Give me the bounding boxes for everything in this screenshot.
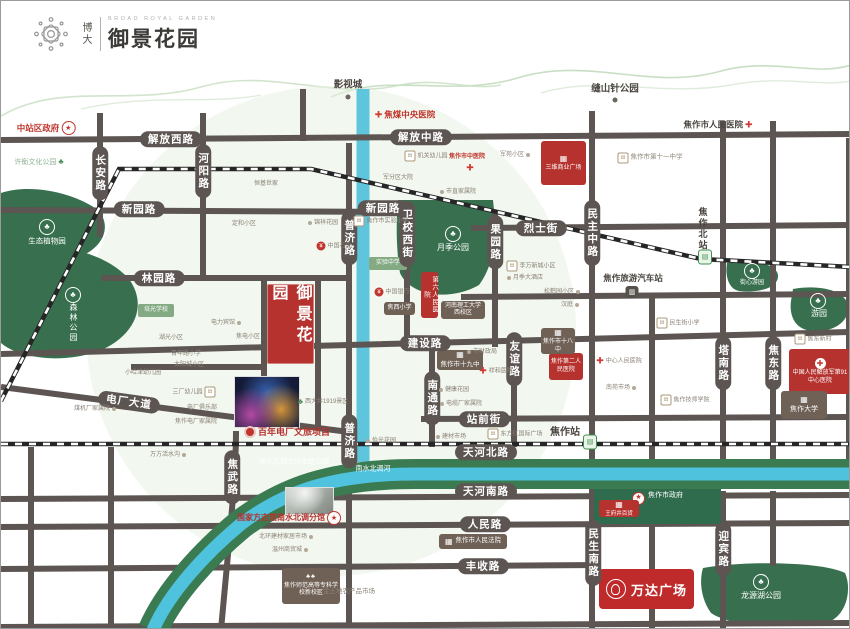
road-label-民主中路: 民主中路 (584, 200, 600, 266)
poi-太阳城小区: 太阳城小区 (174, 362, 204, 368)
poi-焦电小区: 焦电小区 (236, 334, 260, 340)
poi-label-text: 怡光花园 (372, 438, 396, 444)
poi-锦祥花园: 锦祥花园 (308, 220, 338, 226)
poi-label-text: 煤机厂家属院 (74, 406, 110, 412)
poi-marker: ♣ (445, 226, 461, 242)
poi-南水北调河: 南水北调河 (356, 466, 391, 473)
poi-label-text: 汉庭 (561, 302, 573, 308)
road-label-解放中路: 解放中路 (390, 129, 452, 145)
district-box-焦作第二人民医院: 焦作第二人民医院 (549, 353, 583, 380)
project-marker-yujing-garden: 御景花园 (267, 284, 314, 364)
road-label-丰收路: 丰收路 (458, 558, 509, 574)
district-box-label: 河南理工大学西校区 (443, 303, 483, 318)
poi-月季公园: 月季公园 (437, 244, 469, 252)
district-box-label: 培光学校 (144, 307, 168, 315)
poi-南苑市场: 南苑市场 (606, 385, 636, 391)
poi-marker: ▤ (698, 250, 712, 265)
school-icon: ▤ (660, 395, 671, 406)
train-icon: ▤ (583, 435, 597, 450)
poi-label-text: 月季公园 (437, 244, 469, 252)
poi-森林公园: 森林公园 (69, 303, 77, 343)
district-box-焦西小学: 焦西小学 (384, 302, 415, 315)
cross-icon: ✚ (745, 121, 753, 130)
dotd-icon (346, 95, 351, 100)
poi-焦作技师学院: ▤焦作技师学院 (660, 395, 709, 406)
poi-label-text: 松鹤园小区 (544, 289, 574, 295)
treesg-icon: ♣ (58, 158, 63, 166)
treesc-icon: ♣ (39, 219, 55, 235)
brand-name-en: BROAD ROYAL GARDEN (108, 16, 217, 22)
poi-label-text: 市直家属院 (446, 189, 476, 195)
poi-label-text: 焦东新村 (807, 336, 831, 342)
poi-label-text: 北环建材家居市场 (259, 534, 307, 540)
road-label-南通路: 南通路 (424, 371, 440, 425)
poi-marker (613, 98, 618, 103)
district-box-焦作市十八中: ▦焦作市十八中 (541, 328, 575, 354)
district-box-label: 三维商业广场 (545, 165, 581, 173)
power-plant-night-photo (234, 376, 300, 428)
poi-label-text: 中站区政府 (17, 124, 60, 133)
poi-民生街小学: ▤民生街小学 (656, 318, 699, 329)
poi-湖光小区: 湖光小区 (159, 335, 183, 341)
poi-label-text: 民生街小学 (669, 320, 699, 326)
poi-焦东新村: ▤焦东新村 (794, 334, 831, 345)
poi-label-text: 龙源湖公园 (741, 592, 781, 600)
building-icon: ▦ (554, 328, 562, 338)
poi-label-text: 锦祥花园 (314, 220, 338, 226)
district-box-焦作市人民法院: ▦焦作市人民法院 (439, 534, 507, 549)
poi-健康花园: 健康花园 (439, 387, 469, 393)
dots-icon (304, 548, 308, 552)
poi-label-text: 许衡文化公园 (14, 159, 56, 166)
poi-月季大酒店: 月季大酒店 (507, 275, 543, 281)
poi-label-text: 影视城 (334, 80, 363, 90)
road-label-人民路: 人民路 (460, 516, 511, 532)
poi-label-text: 军分区大院 (383, 175, 413, 181)
brand-project-name: 御景花园 (108, 23, 217, 53)
road-label-焦东路: 焦东路 (765, 336, 781, 390)
poi-marker: ▤ (583, 435, 597, 450)
poi-label-text: 焦作旅游汽车站 (603, 274, 663, 283)
bus-icon: ▥ (626, 286, 639, 298)
treesc-icon: ♣ (810, 293, 826, 309)
district-box-中国人民解放军第91中心医院: ✚中国人民解放军第91中心医院 (789, 349, 850, 394)
brand-divider (100, 17, 101, 51)
cross-icon: ✚ (375, 111, 383, 120)
poi-煤机厂家属院: 煤机厂家属院 (74, 406, 116, 412)
poi-marker: ♣ (744, 263, 760, 279)
wanda-logo-icon (606, 579, 626, 599)
poi-汉庭: 汉庭 (561, 302, 579, 308)
poi-marker: ✚ (466, 164, 474, 173)
dots-icon (436, 435, 440, 439)
trees-icon: ♣♣ (306, 574, 316, 582)
road-label-站前街: 站前街 (459, 411, 510, 427)
poi-label-text: 健康花园 (445, 387, 469, 393)
poi-中站区政府: 中站区政府★ (17, 121, 76, 135)
poi-恒基世家: 恒基世家 (254, 181, 278, 187)
reddot-icon (244, 426, 256, 438)
district-box-label: 王府井百货 (605, 511, 633, 518)
poi-label-text: 太阳城小区 (174, 362, 204, 368)
road-label-烈士街: 烈士街 (516, 220, 567, 236)
poi-marker: ♣ (753, 574, 769, 590)
road-label-焦武路: 焦武路 (224, 450, 240, 504)
building-icon: ▦ (456, 350, 464, 360)
poi-焦作旅游汽车站: 焦作旅游汽车站 (603, 274, 663, 283)
poi-三厂幼儿园: 三厂幼儿园▤ (172, 387, 215, 398)
treesc-icon: ♣ (744, 263, 760, 279)
poi-北环建材家居市场: 北环建材家居市场 (259, 534, 313, 540)
poi-label-text: 祥和医院 (489, 368, 513, 374)
poi-建材市场: 建材市场 (436, 434, 466, 440)
cross-icon: ✚ (466, 164, 474, 173)
poi-label-text: 南水北调文化主题公园 (259, 459, 329, 466)
poi-中国银行: ¥中国银行 (374, 288, 409, 297)
poi-marker (346, 95, 351, 100)
poi-marker: ♣ (810, 293, 826, 309)
poi-label-text: 电厂俱乐部 (187, 405, 217, 411)
district-box-label: 焦作第二人民医院 (551, 359, 581, 374)
dots-icon (440, 402, 444, 406)
poi-国家方志馆南水北调分馆: 国家方志馆南水北调分馆★ (237, 511, 341, 525)
poi-定和小区: 定和小区 (232, 221, 256, 227)
school-icon: ▤ (656, 318, 667, 329)
poi-焦作市人民医院: 焦作市人民医院✚ (683, 121, 752, 130)
poi-label-text: 青年路小学 (171, 351, 201, 357)
poi-南水北调文化主题公园: 南水北调文化主题公园 (259, 459, 329, 466)
poi-label-text: 国家方志馆南水北调分馆 (237, 514, 325, 522)
poi-label-text: 三厂幼儿园 (172, 389, 202, 395)
poi-松鹤园小区: 松鹤园小区 (544, 289, 580, 295)
road-label-新园路: 新园路 (114, 201, 165, 217)
district-box-label: 焦作市政府 (648, 492, 683, 501)
school-icon: ▤ (353, 216, 364, 227)
poi-label-text: 街心游园 (740, 280, 764, 286)
poi-电缆厂家属院: 电缆厂家属院 (440, 401, 482, 407)
district-box-第六人民医院: 第六人民医院 (421, 272, 438, 318)
poi-市财政局: 市财政局 (467, 349, 497, 355)
brand-medallion-icon (31, 14, 71, 54)
poi-label-text: 东方红国际广场 (500, 431, 542, 437)
poi-焦作市实验小学: ▤焦作市实验小学 (353, 216, 408, 227)
poi-温州商贸城: 温州商贸城 (272, 547, 308, 553)
poi-label-text: 游园 (811, 310, 827, 318)
dots-icon (507, 276, 511, 280)
poi-焦煤中央医院: ✚焦煤中央医院 (375, 111, 436, 120)
road-label-林园路: 林园路 (134, 270, 185, 286)
district-box-label: 焦西小学 (387, 305, 411, 313)
brand-name-cn: 博大 (78, 22, 93, 46)
building-icon: ▦ (800, 395, 808, 405)
poi-市直家属院: 市直家属院 (440, 189, 476, 195)
poi-焦作电厂家属院: 焦作电厂家属院 (175, 419, 217, 425)
poi-龙源湖公园: 龙源湖公园 (741, 592, 781, 600)
dots-icon (632, 386, 636, 390)
dots-icon (309, 535, 313, 539)
poi-游园: 游园 (811, 310, 827, 318)
poi-东方红国际广场: ▤东方红国际广场 (487, 429, 542, 440)
star-icon: ★ (327, 511, 341, 525)
school-icon: ▤ (404, 151, 415, 162)
poi-label-text: 焦电小区 (236, 334, 260, 340)
treesc-icon: ♣ (65, 287, 81, 303)
district-box-三维商业广场: ▦三维商业广场 (541, 141, 586, 185)
cross-icon: ✚ (596, 357, 604, 366)
road-label-天河南路: 天河南路 (455, 483, 517, 499)
poi-机关幼儿园: ▤机关幼儿园 (404, 151, 447, 162)
poi-label-text: 建材市场 (442, 434, 466, 440)
wanda-label: 万达广场 (631, 580, 687, 599)
poi-label-text: 焦作市实验小学 (366, 218, 408, 224)
poi-百年电厂文旅项目: 百年电厂文旅项目 (244, 426, 330, 438)
poi-label-text: 湖光小区 (159, 335, 183, 341)
road-label-果园路: 果园路 (487, 215, 503, 269)
project-name: 御景花园 (267, 284, 315, 364)
poi-label-text: 金土地农产品市场 (323, 589, 375, 596)
poi-万方活水沟: 万方活水沟 (150, 452, 186, 458)
poi-marker: ♣ (39, 219, 55, 235)
poi-李万新城小区: ▤李万新城小区 (506, 261, 555, 272)
road-label-长安路: 长安路 (92, 146, 108, 200)
poi-label-text: 定和小区 (232, 221, 256, 227)
poi-label-text: 中国石化 (327, 243, 351, 249)
poi-许衡文化公园: 许衡文化公园♣ (14, 158, 63, 166)
poi-军苑小区: 军苑小区 (500, 152, 530, 158)
poi-焦作市第十一中学: ▤焦作市第十一中学 (618, 153, 683, 164)
poi-marker: ▥ (626, 286, 639, 298)
district-box-河南理工大学西校区: 河南理工大学西校区 (441, 301, 485, 319)
school-icon: ▤ (794, 334, 805, 345)
district-box-label: 焦作市十九中 (441, 361, 480, 369)
dots-icon (439, 388, 443, 392)
cross-icon: ✚ (479, 367, 487, 376)
dots-icon (575, 303, 579, 307)
poi-label-text: 小哈津幼儿园 (125, 370, 161, 376)
poi-焦作站: 焦作站 (550, 428, 580, 438)
poi-label-text: 焦煤中央医院 (384, 111, 435, 120)
school-icon: ▤ (205, 387, 216, 398)
school-icon: ▤ (487, 429, 498, 440)
cross-icon: ✚ (815, 358, 826, 369)
poi-缝山针公园: 缝山针公园 (591, 84, 639, 94)
poi-影视城: 影视城 (334, 80, 363, 90)
poi-label-text: 万方活水沟 (150, 452, 180, 458)
poi-怡光花园: 怡光花园 (366, 438, 396, 444)
wanda-plaza-marker: 万达广场 (599, 569, 694, 609)
road-label-建设路: 建设路 (400, 335, 451, 351)
district-box-焦作师范高等专科学校新校区: ♣♣焦作师范高等专科学校新校区 (282, 568, 340, 604)
road-label-普济路: 普济路 (341, 414, 357, 468)
poi-金土地农产品市场: 金土地农产品市场 (317, 589, 375, 596)
poi-label-text: 电力宾馆 (211, 320, 235, 326)
poi-label-text: 西大井1919景区 (305, 399, 348, 405)
district-box-label: 第六人民医院 (421, 274, 437, 316)
road-label-民生南路: 民生南路 (585, 520, 601, 586)
district-box-label: 焦作大学 (790, 406, 818, 415)
poi-中心人民医院: ✚中心人民医院 (596, 357, 642, 366)
building-icon: ▦ (615, 500, 623, 510)
poi-label-text: 百年电厂文旅项目 (258, 428, 330, 437)
dots-icon (440, 190, 444, 194)
poi-label-text: 李万新城小区 (519, 263, 555, 269)
road-label-迎宾路: 迎宾路 (715, 522, 731, 576)
poi-焦作北站: 焦作北站 (698, 207, 707, 251)
poi-label-text: 焦作电厂家属院 (175, 419, 217, 425)
poi-label-text: 缝山针公园 (591, 84, 639, 94)
road-label-天河北路: 天河北路 (455, 444, 517, 460)
building-icon: ▦ (560, 154, 568, 164)
treesg-icon: ♣ (298, 398, 303, 406)
poi-label-text: 森林公园 (69, 303, 77, 343)
road-label-卫校西街: 卫校西街 (399, 201, 415, 267)
bank-icon: ¥ (316, 242, 325, 251)
district-box-label: 焦作市人民法院 (456, 537, 502, 545)
dotd-icon (613, 98, 618, 103)
poi-label-text: 中国银行 (385, 289, 409, 295)
dots-icon (366, 439, 370, 443)
poi-label-text: 南苑市场 (606, 385, 630, 391)
bank-icon: ¥ (374, 288, 383, 297)
poi-label-text: 焦作北站 (698, 207, 707, 251)
poi-电力宾馆: 电力宾馆 (211, 320, 241, 326)
poi-label-text: 焦作市第十一中学 (631, 155, 683, 162)
treesc-icon: ♣ (753, 574, 769, 590)
poi-青年路小学: 青年路小学 (171, 351, 201, 357)
dots-icon (308, 221, 312, 225)
poi-焦作市中医院: 焦作市中医院 (449, 154, 485, 160)
poi-小哈津幼儿园: 小哈津幼儿园 (125, 370, 161, 376)
poi-label-text: 焦作市中医院 (449, 154, 485, 160)
district-box-王府井百货: ▦王府井百货 (599, 500, 639, 517)
district-box-label: 中国人民解放军第91中心医院 (791, 370, 849, 385)
treesc-icon: ♣ (445, 226, 461, 242)
road-label-解放西路: 解放西路 (140, 131, 202, 147)
poi-label-text: 机关幼儿园 (417, 153, 447, 159)
district-box-焦作大学: ▦焦作大学 (781, 391, 827, 419)
dots-icon (576, 290, 580, 294)
poi-祥和医院: ✚祥和医院 (479, 367, 513, 376)
poi-西大井1919景区: ♣西大井1919景区 (298, 398, 349, 406)
poi-label-text: 南水北调河 (356, 466, 391, 473)
dots-icon (467, 350, 471, 354)
poi-军分区大院: 军分区大院 (383, 175, 413, 181)
poi-电厂俱乐部: 电厂俱乐部 (187, 405, 217, 411)
district-box-label: 焦作市十八中 (543, 339, 573, 354)
poi-label-text: 焦作站 (550, 428, 580, 438)
district-box-label: 实验中学 (376, 260, 400, 268)
dots-icon (112, 407, 116, 411)
district-box-培光学校: 培光学校 (138, 304, 174, 317)
poi-label-text: 焦作技师学院 (673, 397, 709, 403)
poi-label-text: 月季大酒店 (513, 275, 543, 281)
poi-label-text: 温州商贸城 (272, 547, 302, 553)
dots-icon (237, 321, 241, 325)
poi-label-text: 军苑小区 (500, 152, 524, 158)
poi-街心游园: 街心游园 (740, 280, 764, 286)
road-label-友谊路: 友谊路 (506, 332, 522, 386)
poi-label-text: 市财政局 (473, 349, 497, 355)
poi-生态植物园: 生态植物园 (28, 237, 66, 245)
poi-label-text: 恒基世家 (254, 181, 278, 187)
poi-label-text: 电缆厂家属院 (446, 401, 482, 407)
road-label-塔南路: 塔南路 (715, 336, 731, 390)
poi-label-text: 焦作市人民医院 (683, 121, 743, 130)
building-icon: ▦ (445, 537, 453, 547)
school-icon: ▤ (506, 261, 517, 272)
poi-marker: ♣ (65, 287, 81, 303)
dots-icon (526, 153, 530, 157)
star-icon: ★ (61, 121, 75, 135)
location-map: 御景花园 万达广场 博大 BROAD ROYAL GARDEN 御景花园 解放西… (0, 0, 850, 629)
dots-icon (182, 453, 186, 457)
poi-中国石化: ¥中国石化 (316, 242, 351, 251)
poi-label-text: 中心人民医院 (606, 358, 642, 364)
road-label-河阳路: 河阳路 (195, 144, 211, 198)
dots-icon (317, 590, 321, 594)
poi-label-text: 生态植物园 (28, 237, 66, 245)
train-icon: ▤ (698, 250, 712, 265)
school-icon: ▤ (618, 153, 629, 164)
brand-logo: 博大 BROAD ROYAL GARDEN 御景花园 (31, 14, 217, 54)
